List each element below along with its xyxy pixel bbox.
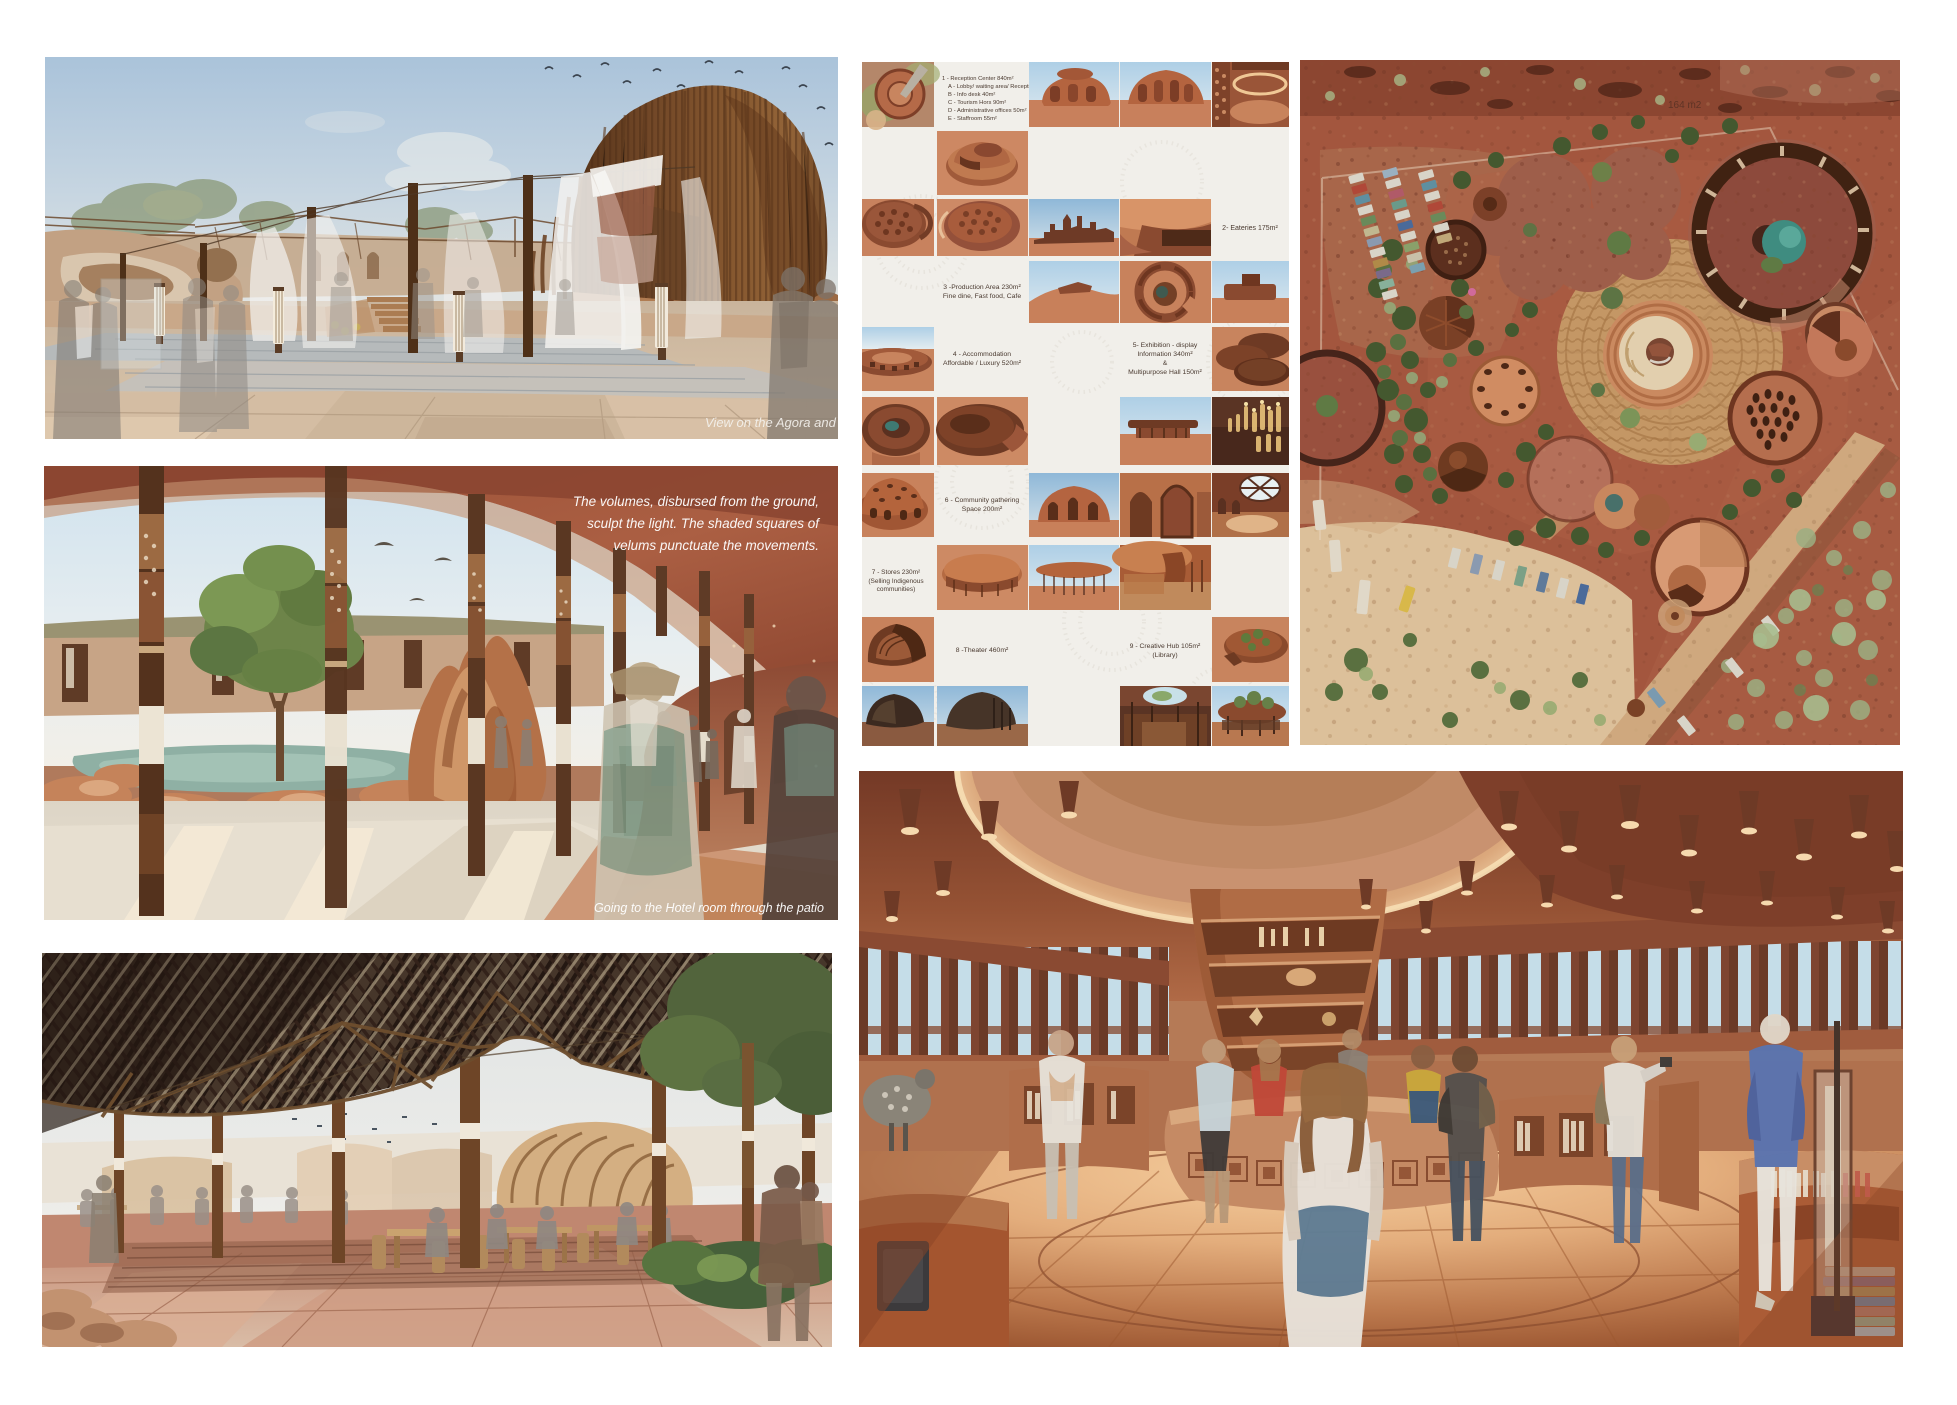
svg-text:2- Eateries 175m²: 2- Eateries 175m²: [1222, 225, 1278, 232]
svg-text:4 - Accommodation: 4 - Accommodation: [953, 351, 1011, 358]
svg-text:sculpt the light. The shaded s: sculpt the light. The shaded squares of: [587, 516, 820, 531]
svg-text:View on the Agora and: View on the Agora and: [705, 415, 837, 430]
svg-text:E - Staffroom 55m²: E - Staffroom 55m²: [948, 116, 997, 122]
svg-text:1 - Reception Center 840m²: 1 - Reception Center 840m²: [942, 76, 1014, 82]
svg-text:The volumes, disbursed from th: The volumes, disbursed from the ground,: [573, 494, 819, 509]
svg-text:&: &: [1163, 360, 1168, 367]
svg-text:Multipurpose Hall 150m²: Multipurpose Hall 150m²: [1128, 369, 1202, 376]
svg-text:B - Info desk 40m²: B - Info desk 40m²: [948, 92, 995, 98]
svg-text:5- Exhibition - display: 5- Exhibition - display: [1133, 342, 1198, 349]
svg-text:7 - Stores 230m²: 7 - Stores 230m²: [872, 569, 921, 576]
svg-text:164 m2: 164 m2: [1668, 100, 1702, 111]
svg-text:6 - Community gathering: 6 - Community gathering: [945, 497, 1020, 504]
svg-text:C - Tourism Hors 90m²: C - Tourism Hors 90m²: [948, 100, 1006, 106]
svg-text:communities): communities): [877, 586, 916, 593]
svg-text:Fine dine, Fast food, Cafe: Fine dine, Fast food, Cafe: [943, 293, 1021, 300]
svg-text:D - Administrative offices 50m: D - Administrative offices 50m²: [948, 108, 1027, 114]
svg-text:velums punctuate the movements: velums punctuate the movements.: [613, 538, 819, 553]
svg-text:Information 340m²: Information 340m²: [1137, 351, 1193, 358]
svg-text:Space 200m²: Space 200m²: [962, 506, 1003, 513]
svg-text:Affordable / Luxury 520m²: Affordable / Luxury 520m²: [943, 360, 1022, 367]
svg-text:3 -Production Area 230m²: 3 -Production Area 230m²: [943, 284, 1021, 291]
svg-text:9 - Creative Hub 105m²: 9 - Creative Hub 105m²: [1130, 643, 1201, 650]
svg-text:8 -Theater 460m²: 8 -Theater 460m²: [956, 647, 1009, 654]
svg-text:Going to the Hotel room throug: Going to the Hotel room through the pati…: [594, 901, 824, 915]
svg-text:(Library): (Library): [1152, 652, 1177, 659]
svg-text:(Selling Indigenous: (Selling Indigenous: [868, 578, 924, 585]
